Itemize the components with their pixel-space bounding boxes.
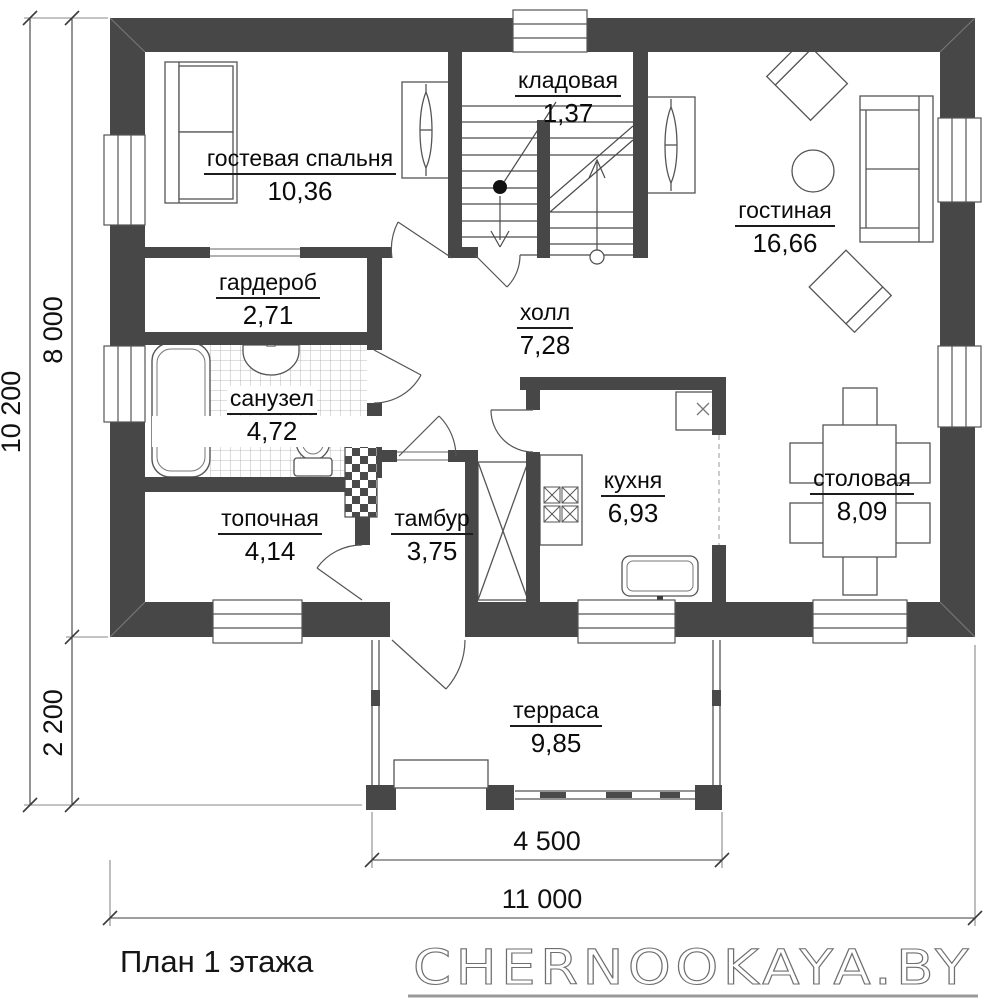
room-name: холл bbox=[517, 300, 573, 329]
room-label-terrace: терраса 9,85 bbox=[436, 698, 676, 759]
room-name: гостевая спальня bbox=[204, 146, 396, 175]
dim-terrace-width: 4 500 bbox=[513, 826, 581, 856]
page-title: План 1 этажа bbox=[120, 944, 313, 980]
room-label-storage: кладовая 1,37 bbox=[448, 68, 688, 129]
brand-logo: CHERNOOKAYA.BY bbox=[408, 940, 978, 996]
room-area: 4,72 bbox=[152, 416, 392, 447]
room-label-guest-bedroom: гостевая спальня 10,36 bbox=[180, 146, 420, 207]
dim-total-height: 10 200 bbox=[0, 371, 26, 454]
terrace-post bbox=[366, 785, 396, 810]
room-area: 2,71 bbox=[148, 300, 388, 331]
room-name: санузел bbox=[227, 386, 317, 415]
dim-total-width: 11 000 bbox=[502, 884, 583, 914]
window bbox=[813, 600, 907, 643]
stair-start-dot bbox=[493, 180, 507, 194]
room-name: столовая bbox=[810, 466, 914, 495]
door-terrace bbox=[392, 640, 465, 689]
room-label-wardrobe: гардероб 2,71 bbox=[148, 270, 388, 331]
dim-terrace-height: 2 200 bbox=[38, 689, 68, 757]
room-label-hall: холл 7,28 bbox=[425, 300, 665, 361]
room-area: 10,36 bbox=[180, 176, 420, 207]
fridge bbox=[676, 392, 718, 430]
door-bedroom bbox=[391, 222, 452, 258]
terrace-post bbox=[695, 785, 722, 810]
window bbox=[578, 600, 675, 643]
door-kitchen bbox=[491, 410, 533, 452]
room-name: терраса bbox=[510, 698, 602, 727]
room-name: топочная bbox=[218, 506, 322, 535]
room-area: 7,28 bbox=[425, 330, 665, 361]
room-name: кладовая bbox=[515, 68, 621, 97]
terrace-bench bbox=[394, 760, 488, 788]
room-name: гостиная bbox=[735, 198, 835, 227]
room-label-kitchen: кухня 6,93 bbox=[513, 468, 753, 529]
window bbox=[938, 346, 981, 427]
brand-logo-text: CHERNOOKAYA.BY bbox=[413, 940, 973, 996]
coffee-table bbox=[792, 150, 834, 192]
room-label-bathroom: санузел 4,72 bbox=[152, 386, 392, 447]
window bbox=[938, 118, 981, 202]
room-name: тамбур bbox=[391, 506, 472, 535]
floor-plan-page: 10 200 8 000 2 200 4 500 11 000 CHERNOOK… bbox=[0, 0, 993, 1000]
room-area: 1,37 bbox=[448, 98, 688, 129]
room-name: кухня bbox=[601, 468, 665, 497]
armchair bbox=[809, 250, 891, 332]
door-opening bbox=[390, 601, 465, 638]
terrace-post bbox=[486, 785, 514, 810]
room-area: 3,75 bbox=[312, 536, 552, 567]
room-area: 9,85 bbox=[436, 728, 676, 759]
window bbox=[513, 10, 587, 52]
room-name: гардероб bbox=[216, 270, 320, 299]
dim-house-height: 8 000 bbox=[38, 296, 68, 364]
window bbox=[104, 135, 145, 225]
room-label-living-room: гостиная 16,66 bbox=[665, 198, 905, 259]
room-area: 8,09 bbox=[742, 496, 982, 527]
window bbox=[104, 346, 145, 422]
window bbox=[213, 600, 302, 643]
room-area: 6,93 bbox=[513, 498, 753, 529]
door-vestibule bbox=[399, 416, 456, 456]
room-area: 16,66 bbox=[665, 228, 905, 259]
room-label-dining-room: столовая 8,09 bbox=[742, 466, 982, 527]
door-under-stairs bbox=[475, 255, 520, 287]
